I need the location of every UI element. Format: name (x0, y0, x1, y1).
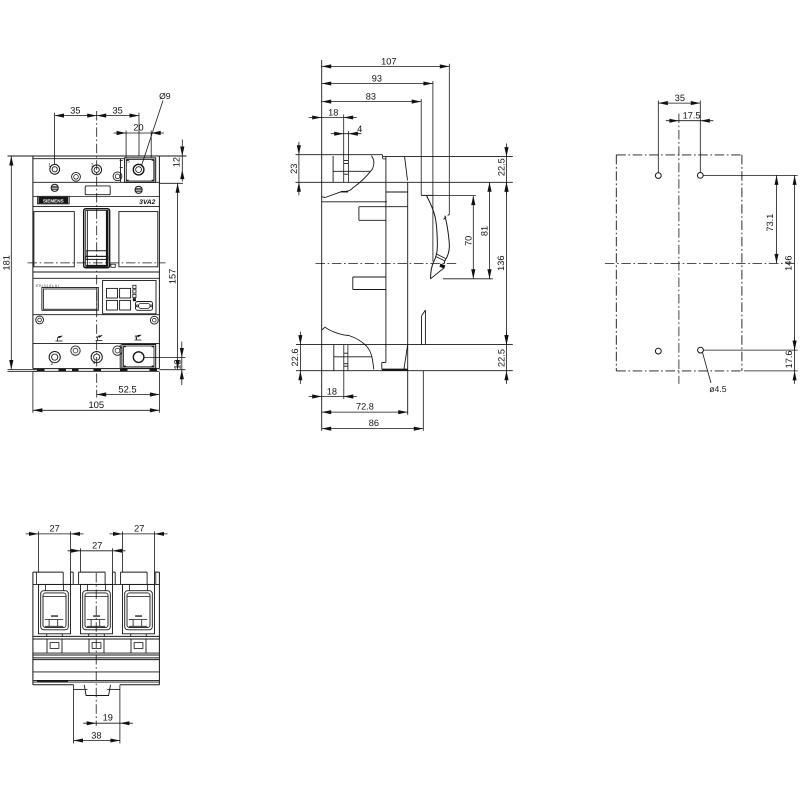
svg-text:1: 1 (48, 162, 51, 168)
svg-text:4: 4 (357, 124, 362, 134)
svg-text:27: 27 (49, 524, 59, 534)
svg-text:23: 23 (289, 164, 299, 174)
svg-text:17.5: 17.5 (683, 111, 701, 121)
svg-text:136: 136 (496, 256, 506, 271)
svg-text:22.6: 22.6 (290, 348, 300, 366)
svg-text:22.5: 22.5 (496, 158, 506, 176)
svg-text:27: 27 (92, 541, 102, 551)
svg-text:Ø9: Ø9 (159, 91, 171, 101)
svg-text:146: 146 (784, 256, 794, 271)
svg-text:93: 93 (372, 73, 382, 83)
svg-text:107: 107 (381, 56, 396, 66)
svg-text:3: 3 (91, 163, 94, 169)
svg-text:27: 27 (134, 524, 144, 534)
svg-text:35: 35 (70, 105, 80, 115)
svg-text:73.1: 73.1 (765, 214, 775, 232)
svg-text:105: 105 (88, 399, 104, 410)
svg-text:ø4.5: ø4.5 (709, 384, 726, 394)
svg-text:12: 12 (171, 157, 181, 167)
svg-text:181: 181 (1, 255, 11, 270)
svg-text:81: 81 (479, 226, 489, 236)
svg-text:86: 86 (369, 418, 379, 428)
svg-text:52.5: 52.5 (118, 384, 136, 395)
svg-text:20: 20 (133, 123, 143, 133)
svg-text:35: 35 (675, 93, 685, 103)
svg-text:18: 18 (327, 387, 337, 397)
svg-text:3VA2: 3VA2 (139, 199, 155, 206)
svg-text:35: 35 (112, 105, 122, 115)
svg-text:SIEMENS: SIEMENS (43, 198, 64, 203)
svg-text:18: 18 (328, 107, 338, 117)
svg-text:83: 83 (366, 91, 376, 101)
svg-text:22.5: 22.5 (496, 349, 506, 367)
svg-text:70: 70 (464, 236, 474, 246)
svg-text:157: 157 (168, 269, 178, 284)
svg-text:38: 38 (91, 730, 101, 740)
svg-text:19: 19 (103, 713, 113, 723)
svg-text:17.6: 17.6 (784, 350, 794, 368)
svg-text:12: 12 (173, 359, 183, 369)
svg-text:72.8: 72.8 (356, 402, 374, 412)
svg-text:6: 6 (135, 335, 138, 341)
svg-text:5: 5 (127, 159, 130, 165)
